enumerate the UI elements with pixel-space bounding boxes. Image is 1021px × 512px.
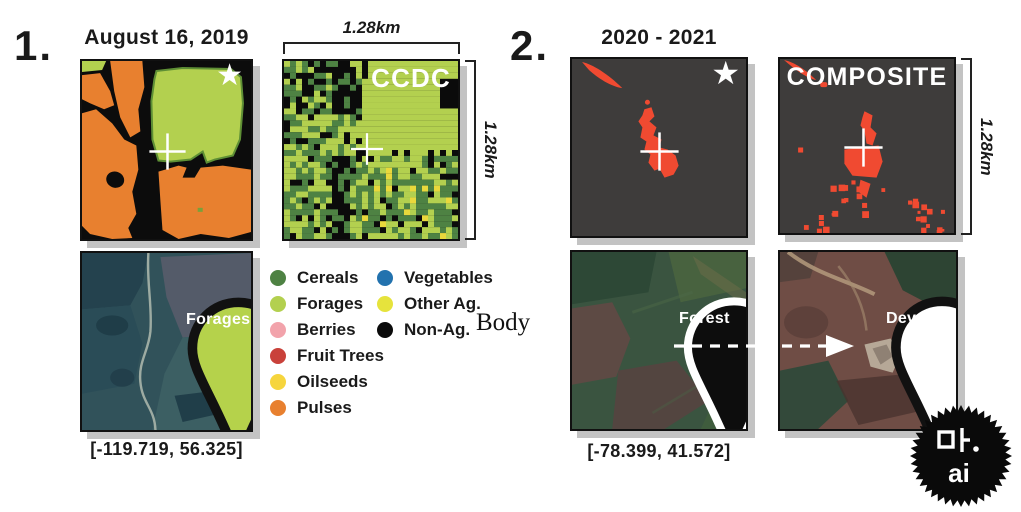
body-artifact-text: Body: [476, 309, 530, 337]
scale-right-label-2: 1.28km: [975, 58, 997, 235]
logo-badge: ai: [906, 402, 1016, 510]
scale-right-label-1: 1.28km: [479, 60, 501, 240]
legend-dot: [270, 348, 286, 364]
figure-root: 1. August 16, 2019 ★ 1.28km: [0, 0, 1021, 512]
legend-item-oilseeds: Oilseeds: [270, 374, 384, 390]
classification-map: ★: [80, 59, 253, 241]
section2-number: 2.: [510, 22, 549, 70]
legend-item-berries: Berries: [270, 322, 384, 338]
period-dot: [973, 446, 979, 452]
legend-label: Vegetables: [404, 268, 493, 288]
coordinates-1: [-119.719, 56.325]: [80, 439, 253, 460]
legend-dot: [270, 322, 286, 338]
section2-date-title: 2020 - 2021: [570, 26, 748, 50]
coordinates-2: [-78.399, 41.572]: [570, 441, 748, 462]
legend-dot: [270, 296, 286, 312]
legend-item-forages: Forages: [270, 296, 384, 312]
satellite-image-forest: Forest: [570, 250, 748, 431]
legend-label: Forages: [297, 294, 363, 314]
starburst-shape: [910, 405, 1012, 507]
ccdc-label: CCDC: [371, 63, 451, 94]
legend-item-cereals: Cereals: [270, 270, 384, 286]
legend-dot: [377, 270, 393, 286]
scale-bracket-top: [283, 42, 460, 56]
pin-label-developed: Developed: [886, 310, 958, 328]
satellite-image-forages: Forages: [80, 251, 253, 432]
legend-item-fruit-trees: Fruit Trees: [270, 348, 384, 364]
star-icon: ★: [711, 57, 740, 89]
legend-dot: [270, 270, 286, 286]
legend-dot: [377, 322, 393, 338]
legend-label: Cereals: [297, 268, 358, 288]
scale-bracket-right-1: [464, 60, 477, 240]
legend-item-vegetables: Vegetables: [377, 270, 493, 286]
legend-label: Berries: [297, 320, 356, 340]
legend-item-pulses: Pulses: [270, 400, 384, 416]
scale-bracket-right-2: [960, 58, 973, 235]
pin-label-forest: Forest: [679, 310, 730, 328]
pin-label-forages: Forages: [186, 311, 250, 329]
legend-label: Pulses: [297, 398, 352, 418]
scale-top-label: 1.28km: [283, 18, 460, 38]
legend-label: Non-Ag.: [404, 320, 470, 340]
section1-date-title: August 16, 2019: [80, 26, 253, 50]
legend-label: Other Ag.: [404, 294, 481, 314]
composite-map: COMPOSITE: [778, 57, 956, 235]
badge-ai-text: ai: [948, 458, 970, 488]
legend-dot: [270, 374, 286, 390]
legend-label: Oilseeds: [297, 372, 368, 392]
legend-column-1: Cereals Forages Berries Fruit Trees Oils…: [270, 270, 384, 416]
legend-dot: [270, 400, 286, 416]
section1-number: 1.: [14, 22, 53, 70]
legend-label: Fruit Trees: [297, 346, 384, 366]
change-map: ★: [570, 57, 748, 238]
ccdc-map: CCDC: [282, 59, 460, 241]
legend-dot: [377, 296, 393, 312]
composite-label: COMPOSITE: [780, 63, 954, 92]
star-icon: ★: [216, 61, 243, 91]
